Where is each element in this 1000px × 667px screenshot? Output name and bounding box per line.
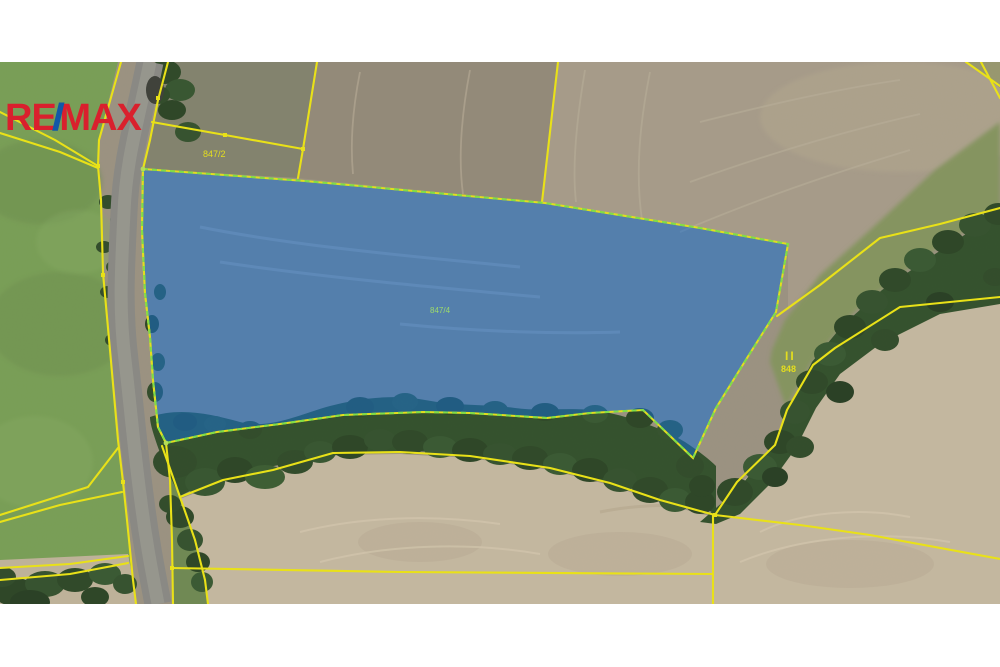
remax-logo-slash: / [52,99,64,137]
listing-map-image: 847/2 847/4 II 848 RE/MAX [0,0,1000,667]
remax-logo-re: RE [5,97,56,139]
grain-overlay [0,62,1000,604]
remax-logo-max: MAX [59,97,140,139]
remax-logo: RE/MAX [5,99,141,137]
map-canvas: 847/2 847/4 II 848 [0,62,1000,604]
aerial-cadastral-map: 847/2 847/4 II 848 [0,62,1000,604]
